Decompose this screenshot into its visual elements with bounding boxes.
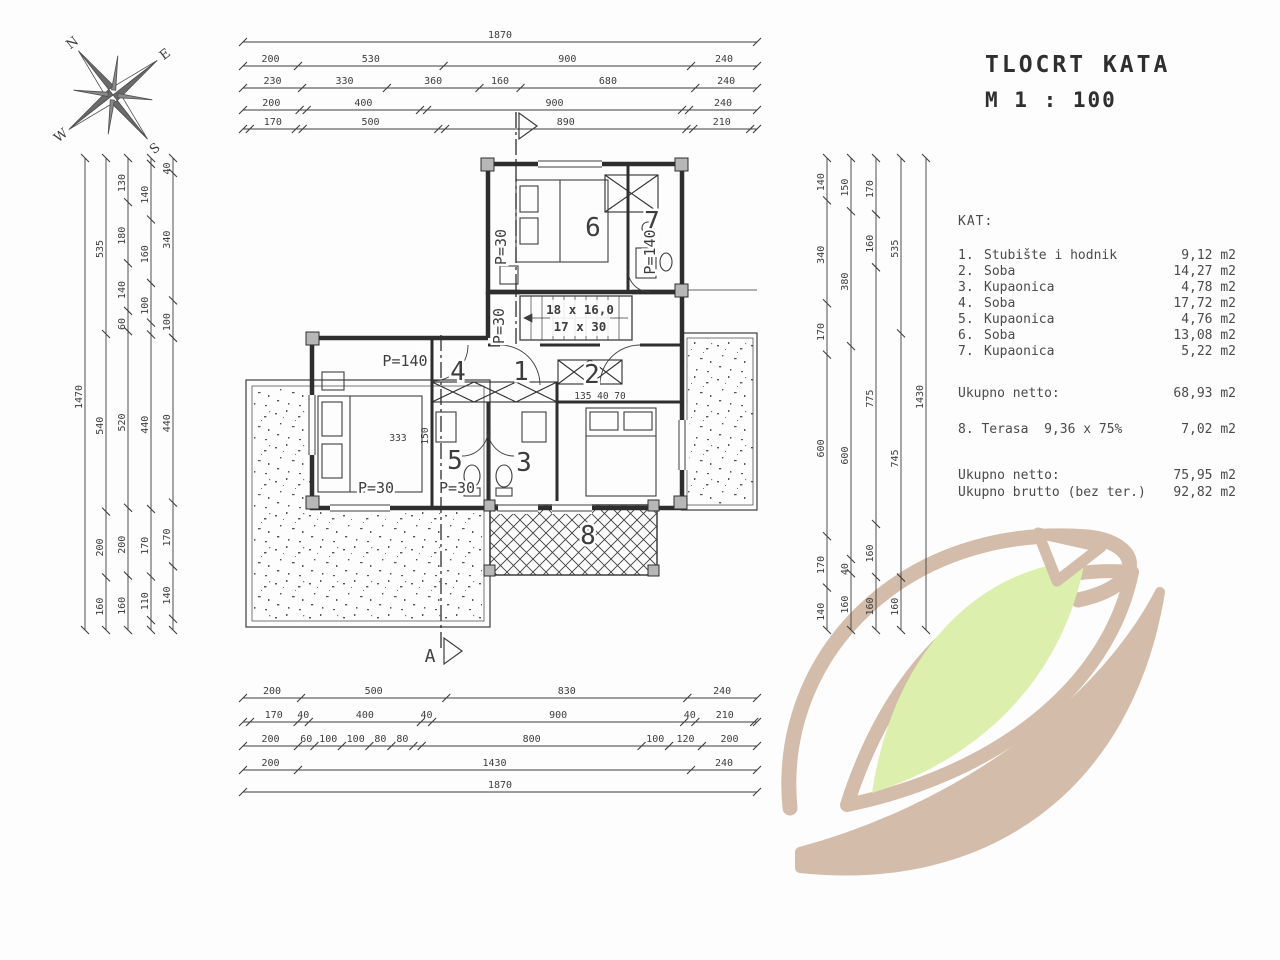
- dim-value: 900: [549, 710, 567, 721]
- legend-room-no: 3.: [958, 280, 984, 296]
- dimension-chain-right: 1403401706001701401503806004016017016077…: [816, 154, 930, 634]
- leaf-logo-watermark: [789, 533, 1160, 871]
- dim-value: 210: [713, 117, 731, 128]
- legend-room-no: 7.: [958, 344, 984, 360]
- small-dim: 135 40 70: [574, 391, 626, 402]
- legend-total-row: 8. Terasa 9,36 x 75%7,02 m2: [958, 422, 1236, 438]
- dim-value: 240: [715, 758, 733, 769]
- dim-value: 110: [140, 592, 151, 610]
- dim-value: 160: [117, 597, 128, 615]
- dim-value: 240: [713, 686, 731, 697]
- dim-value: 400: [356, 710, 374, 721]
- dim-value: 535: [95, 240, 106, 258]
- legend-header: KAT:: [958, 214, 1236, 230]
- dim-value: 535: [890, 240, 901, 258]
- legend-total-row: Ukupno netto:75,95 m2: [958, 468, 1236, 484]
- parapet-label: P=30: [492, 229, 510, 265]
- bed-marks: 333: [389, 433, 406, 444]
- stair-annotation: 18 x 16,0 17 x 30: [546, 300, 614, 336]
- dim-value: 40: [684, 710, 696, 721]
- dim-value: 100: [319, 734, 337, 745]
- dim-value: 200: [261, 758, 279, 769]
- stair-dimension-line1: 18 x 16,0: [546, 302, 614, 317]
- compass-n-label: N: [64, 34, 82, 53]
- dim-value: 80: [374, 734, 386, 745]
- legend-room-row: 2.Soba14,27 m2: [958, 264, 1236, 280]
- drawing-scale: M 1 : 100: [985, 88, 1170, 112]
- dim-value: 170: [865, 180, 876, 198]
- drawing-title: TLOCRT KATA: [985, 52, 1170, 78]
- dim-value: 160: [865, 235, 876, 253]
- legend-room-row: 7.Kupaonica5,22 m2: [958, 344, 1236, 360]
- dim-value: 200: [262, 98, 280, 109]
- legend-room-no: 6.: [958, 328, 984, 344]
- legend-total-value: 92,82 m2: [1150, 485, 1236, 501]
- legend-room-name: Stubište i hodnik: [984, 248, 1160, 264]
- dim-value: 60: [117, 318, 128, 330]
- legend-room-row: 1.Stubište i hodnik9,12 m2: [958, 248, 1236, 264]
- dim-value: 200: [263, 686, 281, 697]
- parapet-label: P=30: [490, 308, 508, 344]
- dim-value: 1430: [915, 385, 926, 409]
- room-number-1: 1: [513, 357, 529, 387]
- dim-value: 230: [264, 76, 282, 87]
- legend-room-area: 5,22 m2: [1160, 344, 1236, 360]
- compass-w-label: W: [51, 126, 71, 146]
- legend-totals: Ukupno netto:68,93 m28. Terasa 9,36 x 75…: [958, 386, 1236, 501]
- section-arrow-bottom: [444, 638, 462, 664]
- legend-room-no: 2.: [958, 264, 984, 280]
- section-letter: A: [425, 646, 436, 667]
- dim-value: 900: [558, 54, 576, 65]
- dim-value: 200: [261, 54, 279, 65]
- dim-value: 745: [890, 449, 901, 467]
- dim-value: 340: [816, 246, 827, 264]
- dim-value: 500: [361, 117, 379, 128]
- room-number-3: 3: [516, 448, 532, 478]
- legend-room-row: 6.Soba13,08 m2: [958, 328, 1236, 344]
- dim-value: 160: [890, 598, 901, 616]
- dim-value: 120: [677, 734, 695, 745]
- stair-dimension-line2: 17 x 30: [554, 319, 607, 334]
- room-legend: KAT: 1.Stubište i hodnik9,12 m22.Soba14,…: [958, 214, 1236, 501]
- dim-value: 400: [354, 98, 372, 109]
- legend-room-no: 5.: [958, 312, 984, 328]
- dim-value: 600: [840, 447, 851, 465]
- dim-value: 240: [717, 76, 735, 87]
- dim-value: 200: [95, 538, 106, 556]
- dimension-chain-left: 1470535540200160130180140605202001601401…: [74, 154, 177, 634]
- plan-parapet-labels: P=140 P=30 P=30 P=30 P=140 P=30: [358, 229, 659, 497]
- dim-value: 1870: [488, 780, 512, 791]
- dim-value: 200: [261, 734, 279, 745]
- dim-value: 160: [140, 245, 151, 263]
- legend-room-name: Soba: [984, 328, 1160, 344]
- title-block: TLOCRT KATA M 1 : 100: [985, 52, 1170, 112]
- legend-room-name: Kupaonica: [984, 344, 1160, 360]
- dim-value: 900: [545, 98, 563, 109]
- legend-total-label: Ukupno netto:: [958, 468, 1150, 484]
- dim-value: 40: [840, 563, 851, 575]
- legend-room-area: 4,78 m2: [1160, 280, 1236, 296]
- small-dim: 150: [420, 427, 431, 444]
- dim-value: 1470: [74, 385, 85, 409]
- dim-value: 830: [558, 686, 576, 697]
- dim-value: 130: [117, 174, 128, 192]
- legend-room-row: 5.Kupaonica4,76 m2: [958, 312, 1236, 328]
- legend-room-area: 4,76 m2: [1160, 312, 1236, 328]
- dim-value: 170: [816, 323, 827, 341]
- legend-room-row: 3.Kupaonica4,78 m2: [958, 280, 1236, 296]
- legend-total-label: 8. Terasa 9,36 x 75%: [958, 422, 1150, 438]
- dim-value: 170: [265, 710, 283, 721]
- legend-total-label: Ukupno brutto (bez ter.): [958, 485, 1150, 501]
- dim-value: 40: [297, 710, 309, 721]
- dimension-chain-bottom: 2005008302401704040040900402102006010010…: [239, 686, 761, 796]
- dim-value: 60: [300, 734, 312, 745]
- dim-value: 170: [264, 117, 282, 128]
- section-arrow-top: [519, 113, 537, 139]
- legend-room-no: 1.: [958, 248, 984, 264]
- dim-value: 890: [557, 117, 575, 128]
- legend-room-list: 1.Stubište i hodnik9,12 m22.Soba14,27 m2…: [958, 248, 1236, 360]
- legend-room-row: 4.Soba17,72 m2: [958, 296, 1236, 312]
- compass-s-label: S: [147, 140, 163, 157]
- dim-value: 530: [362, 54, 380, 65]
- dim-value: 180: [117, 227, 128, 245]
- dim-value: 500: [365, 686, 383, 697]
- parapet-label: P=140: [641, 229, 659, 274]
- dim-value: 170: [140, 537, 151, 555]
- dim-value: 80: [396, 734, 408, 745]
- dim-value: 40: [420, 710, 432, 721]
- legend-total-value: 68,93 m2: [1150, 386, 1236, 402]
- legend-room-area: 17,72 m2: [1160, 296, 1236, 312]
- legend-room-name: Soba: [984, 264, 1160, 280]
- parapet-label: P=30: [358, 479, 394, 497]
- floorplan-sheet: N E S W: [0, 0, 1280, 960]
- dim-value: 140: [816, 603, 827, 621]
- dim-value: 540: [95, 417, 106, 435]
- legend-room-area: 9,12 m2: [1160, 248, 1236, 264]
- room-number-2: 2: [584, 360, 600, 390]
- legend-room-area: 13,08 m2: [1160, 328, 1236, 344]
- dim-value: 140: [117, 281, 128, 299]
- room-number-4: 4: [450, 357, 466, 387]
- legend-room-no: 4.: [958, 296, 984, 312]
- dim-value: 100: [646, 734, 664, 745]
- compass-rose-icon: N E S W: [11, 0, 216, 200]
- room-number-8: 8: [580, 521, 596, 551]
- dim-value: 330: [335, 76, 353, 87]
- dim-value: 800: [523, 734, 541, 745]
- room-number-5: 5: [447, 446, 463, 476]
- legend-total-label: Ukupno netto:: [958, 386, 1150, 402]
- dim-value: 160: [95, 598, 106, 616]
- dim-value: 520: [117, 413, 128, 431]
- legend-room-area: 14,27 m2: [1160, 264, 1236, 280]
- legend-room-name: Soba: [984, 296, 1160, 312]
- dim-value: 1870: [488, 30, 512, 41]
- dim-value: 40: [162, 162, 173, 174]
- dim-value: 380: [840, 273, 851, 291]
- dim-value: 680: [599, 76, 617, 87]
- dim-value: 100: [347, 734, 365, 745]
- dim-value: 140: [140, 186, 151, 204]
- dim-value: 170: [816, 556, 827, 574]
- legend-total-row: Ukupno netto:68,93 m2: [958, 386, 1236, 402]
- dim-value: 160: [491, 76, 509, 87]
- dim-value: 100: [162, 313, 173, 331]
- dim-value: 340: [162, 231, 173, 249]
- dim-value: 600: [816, 439, 827, 457]
- dim-value: 775: [865, 390, 876, 408]
- dim-value: 170: [162, 528, 173, 546]
- dim-value: 100: [140, 297, 151, 315]
- dim-value: 440: [162, 414, 173, 432]
- parapet-label: P=30: [439, 479, 475, 497]
- legend-room-name: Kupaonica: [984, 312, 1160, 328]
- legend-total-value: 75,95 m2: [1150, 468, 1236, 484]
- dim-value: 1430: [482, 758, 506, 769]
- dim-value: 240: [715, 54, 733, 65]
- dim-value: 140: [162, 587, 173, 605]
- dim-value: 140: [816, 173, 827, 191]
- parapet-label: P=140: [382, 352, 427, 370]
- legend-room-name: Kupaonica: [984, 280, 1160, 296]
- compass-e-label: E: [157, 46, 174, 64]
- dim-value: 210: [716, 710, 734, 721]
- dim-value: 200: [117, 536, 128, 554]
- dim-value: 240: [714, 98, 732, 109]
- dim-value: 200: [720, 734, 738, 745]
- dim-value: 160: [865, 544, 876, 562]
- dimension-chain-top: 1870200530900240230330360160680240200400…: [239, 30, 761, 133]
- dim-value: 440: [140, 416, 151, 434]
- legend-total-value: 7,02 m2: [1150, 422, 1236, 438]
- dim-value: 160: [840, 596, 851, 614]
- dim-value: 160: [865, 597, 876, 615]
- room-number-6: 6: [585, 213, 601, 243]
- dim-value: 150: [840, 179, 851, 197]
- dim-value: 360: [424, 76, 442, 87]
- legend-total-row: Ukupno brutto (bez ter.)92,82 m2: [958, 485, 1236, 501]
